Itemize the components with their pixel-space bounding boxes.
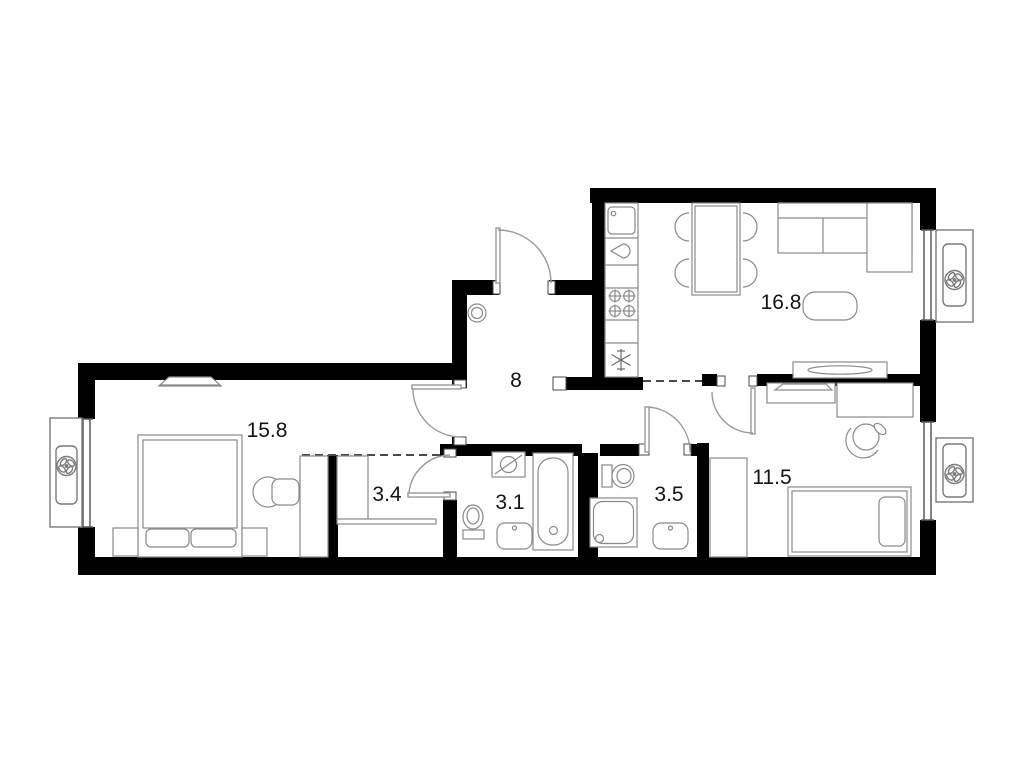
- wardrobe-master: [300, 456, 328, 557]
- floor-plan-svg: 8 15.8 3.4 3.1 3.5 16.8 11.5: [0, 0, 1024, 768]
- washing-machine-icon: [492, 452, 525, 477]
- fan-icon: [57, 457, 76, 476]
- tv-stand-living: [793, 362, 887, 378]
- bedroom2-door: [712, 388, 755, 434]
- floor-plan-page: 8 15.8 3.4 3.1 3.5 16.8 11.5: [0, 0, 1024, 768]
- dining-table: [692, 203, 740, 295]
- kitchen-sink-icon: [608, 207, 635, 234]
- wall-bottom: [78, 557, 936, 575]
- fan-icon: [945, 465, 964, 484]
- bathtub: [533, 453, 573, 550]
- label-master-bedroom: 15.8: [247, 419, 288, 442]
- entry-door: [496, 228, 551, 283]
- kitchen-counter: [605, 203, 638, 377]
- tv-icon: [775, 384, 832, 390]
- pillow: [879, 497, 905, 546]
- window-living-room: [921, 230, 934, 320]
- coffee-table: [803, 292, 857, 320]
- bathroom2-door: [645, 407, 690, 452]
- corridor-stool: [468, 304, 486, 322]
- tv-dresser: [767, 383, 835, 403]
- ac-unit-left: [50, 418, 82, 527]
- label-bathroom2: 3.5: [654, 483, 683, 506]
- wall-right-b: [920, 320, 936, 422]
- sink: [497, 523, 532, 549]
- nightstand-left: [113, 528, 138, 556]
- wall-left-b: [78, 527, 95, 575]
- window-bedroom2: [921, 422, 934, 520]
- office-chair: [846, 421, 888, 457]
- label-closet: 3.4: [372, 483, 402, 506]
- wardrobe: [710, 458, 747, 557]
- label-hallway: 8: [510, 369, 522, 392]
- single-bed: [788, 487, 911, 556]
- desk: [837, 383, 913, 417]
- toilet: [602, 465, 634, 488]
- double-bed: [138, 435, 242, 557]
- armchair: [253, 477, 299, 507]
- wall-corridor-top-left: [452, 280, 499, 295]
- label-bathroom1: 3.1: [495, 491, 524, 514]
- wall-leftwing-top: [78, 363, 452, 380]
- wall-closet-west: [327, 455, 338, 557]
- fan-icon: [945, 271, 964, 290]
- wall-bath2-top-band: [600, 444, 639, 456]
- wall-top-upper-block: [590, 188, 936, 203]
- wall-closet-bath-divider: [443, 500, 457, 557]
- ac-unit-top-right: [936, 230, 973, 322]
- wall-kitchen-west: [592, 203, 605, 377]
- wall-corridor-west: [452, 280, 467, 388]
- master-bedroom-furniture: [113, 377, 328, 557]
- bathroom1-door: [408, 455, 450, 497]
- master-bedroom-door: [412, 385, 461, 437]
- wall-bedroom2-top-a: [702, 374, 717, 386]
- label-kitchen-living: 16.8: [761, 291, 802, 314]
- shower-cabin: [590, 498, 637, 547]
- label-bedroom2: 11.5: [752, 466, 791, 489]
- toilet: [463, 505, 484, 539]
- corner-sofa: [778, 203, 912, 272]
- wall-kitchen-south-bar: [566, 377, 643, 390]
- tv-icon-master: [158, 377, 222, 386]
- pillow: [146, 529, 189, 547]
- wall-right-a: [920, 188, 936, 230]
- pillow: [191, 529, 236, 547]
- sink: [653, 523, 688, 549]
- nightstand-right: [242, 528, 267, 556]
- wall-bath2-bedroom2-divider: [697, 443, 709, 557]
- ac-unit-bottom-right: [936, 438, 973, 502]
- bedroom2-furniture: [710, 383, 913, 557]
- tv-icon: [808, 366, 872, 374]
- bathroom2-fixtures: [590, 465, 688, 550]
